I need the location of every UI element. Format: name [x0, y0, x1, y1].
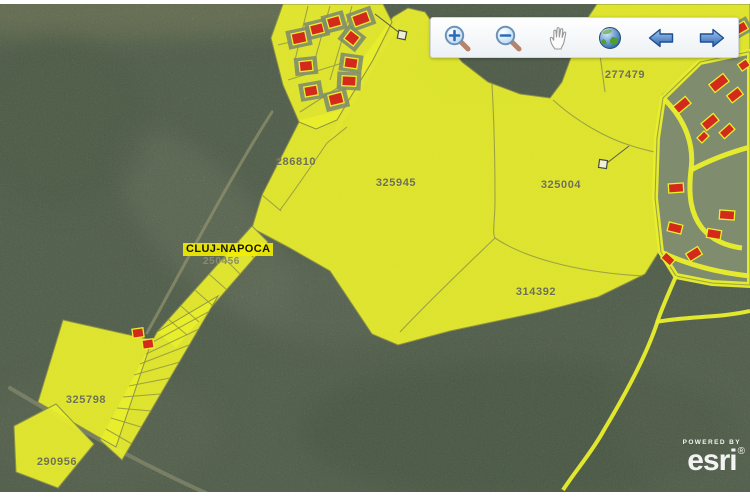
- parcel-label: 325798: [66, 394, 106, 406]
- zoom-in-magnifier-icon: [443, 24, 471, 52]
- page-margin-top: [0, 0, 750, 4]
- pan-hand-icon: [545, 24, 573, 52]
- next-extent-button[interactable]: [694, 21, 730, 55]
- city-code: 250456: [203, 257, 273, 267]
- zoom-out-magnifier-icon: [494, 24, 522, 52]
- survey-marker: [598, 159, 607, 168]
- arrow-left-icon: [647, 24, 675, 52]
- zoom-in-button[interactable]: [439, 21, 475, 55]
- parcel-label: 290956: [37, 456, 77, 468]
- previous-extent-button[interactable]: [643, 21, 679, 55]
- gis-map-viewer: 277479 286810 325945 325004 314392 32579…: [0, 0, 750, 500]
- full-extent-button[interactable]: [592, 21, 628, 55]
- parcel-label: 277479: [605, 69, 645, 81]
- map-toolbar: [430, 17, 739, 58]
- survey-marker: [397, 30, 406, 39]
- registered-mark: ®: [738, 447, 745, 457]
- city-label: CLUJ-NAPOCA 250456: [183, 240, 273, 267]
- page-margin-bottom: [0, 492, 750, 500]
- parcel-label: 286810: [276, 156, 316, 168]
- arrow-right-icon: [698, 24, 726, 52]
- zoom-out-button[interactable]: [490, 21, 526, 55]
- parcel-label: 325945: [376, 177, 416, 189]
- attribution: POWERED BY esri ®: [683, 440, 745, 477]
- globe-icon: [596, 24, 624, 52]
- parcel-label: 314392: [516, 286, 556, 298]
- pan-button[interactable]: [541, 21, 577, 55]
- parcel-label: 325004: [541, 179, 581, 191]
- esri-logo: esri: [687, 446, 736, 476]
- map-viewport: 277479 286810 325945 325004 314392 32579…: [0, 4, 750, 492]
- city-name: CLUJ-NAPOCA: [183, 243, 273, 256]
